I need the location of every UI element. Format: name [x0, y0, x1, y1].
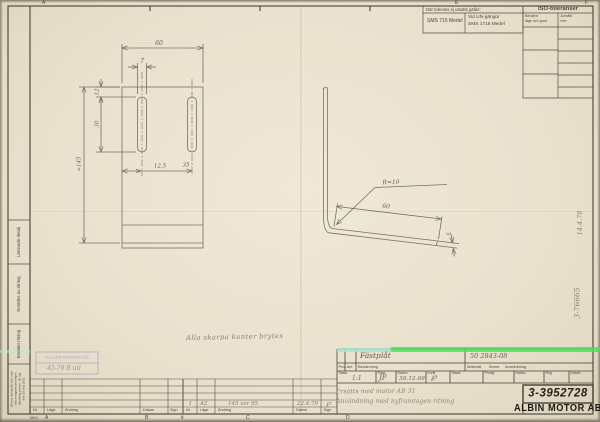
- rev-entry-sign: ℘: [326, 400, 331, 407]
- margin-box-ersatter-ritning: Ersätter ritning: [17, 330, 21, 359]
- iso-col1-line2: läge och grad: [525, 20, 547, 24]
- titleblock-prodgr-label: Prodgr: [485, 372, 495, 375]
- titleblock-anmarkning-header: Anmärkning: [505, 365, 526, 369]
- rev-entry-lage: A2: [200, 402, 207, 408]
- rev-right-datum-header: Datum: [296, 409, 307, 413]
- rev-right-andring-header: Ändring: [218, 409, 231, 413]
- edge-letter-bottom-mko: MKO: [30, 417, 38, 421]
- edge-letter-bottom-c: C: [246, 416, 250, 421]
- rev-left-nr-header: Nr: [33, 409, 37, 413]
- dim-bend-radius: R≈10: [382, 179, 399, 186]
- edge-mark-centerfold: ∨: [180, 415, 184, 421]
- margin-pencil-ref: 3-76665: [573, 287, 581, 318]
- dim-height-145: ≈145: [77, 156, 83, 171]
- titleblock-datum1-value: 30.12.69: [399, 377, 425, 383]
- rev-entry-nr: 1: [189, 402, 193, 408]
- drawing-linework: [0, 0, 600, 422]
- titleblock-skala-value: 1:1: [352, 376, 362, 382]
- tolerance-un-line2: SMS 1718 Medel: [468, 23, 505, 28]
- margin-pencil-date: 14.4.78: [577, 211, 584, 236]
- titleblock-stand-label: Stand: [452, 372, 461, 375]
- dim-width-60: 60: [155, 41, 163, 47]
- iso-col2-line2: mm: [561, 20, 567, 24]
- margin-box-lamnade-detalj: Lämnade detalj: [17, 227, 21, 257]
- titleblock-material-value: 50 2843-08: [470, 353, 507, 360]
- scanned-drawing-sheet: A E F MKO A B ∨ C D Där tolerans ej utsa…: [0, 0, 600, 422]
- rev-left-lage-header: Läge: [47, 409, 55, 413]
- titleblock-skala-label: Skala: [339, 372, 347, 375]
- margin-box-ersattes-av-ritning: Ersättes av ritning: [17, 276, 21, 311]
- titleblock-datum3-label: Datum: [571, 372, 581, 375]
- rev-right-lage-header: Läge: [200, 409, 208, 413]
- rev-left-sign-header: Sign: [170, 409, 178, 413]
- stamp-line1: TILLHÖR AKRONOLÖJD: [45, 356, 89, 359]
- iso-table-title: ISO-toleranser: [538, 7, 578, 13]
- edge-letter-bottom-a: A: [45, 416, 48, 421]
- titleblock-amne-header: Ämne: [489, 365, 499, 369]
- stamp-line2: 45-79 B utl: [47, 366, 81, 372]
- dim-slot-width-7: 7: [140, 59, 144, 65]
- titleblock-ant-header: Ant: [347, 365, 353, 369]
- tolerance-table-header: Där tolerans ej utsatts gäller:: [426, 8, 481, 12]
- titleblock-name-value: Fästplåt: [360, 352, 391, 360]
- titleblock-kontr-signature: ℘: [431, 373, 437, 381]
- rev-entry-datum: 22.4.70: [297, 402, 318, 408]
- drawing-number: 3-3952728: [528, 388, 588, 400]
- rev-right-sign-header: Sign: [324, 409, 332, 413]
- rev-left-andring-header: Ändring: [65, 409, 78, 413]
- edge-letter-top-e: E: [455, 1, 458, 6]
- titleblock-pencil-note1: Ersätts med motor AB 31: [336, 389, 416, 396]
- edge-letter-bottom-b: B: [145, 416, 148, 421]
- edge-letter-bottom-d: D: [346, 416, 350, 421]
- titleblock-ritad-value: JP: [379, 375, 387, 382]
- rev-right-nr-header: Nr: [186, 409, 190, 413]
- margin-legal-line4: den 29 maj 1931: [22, 377, 25, 400]
- front-view-plate: [79, 44, 203, 248]
- titleblock-reg-label: Reg: [546, 372, 552, 375]
- titleblock-benamning-header: Benämning: [358, 365, 378, 369]
- edge-letter-top-a: A: [42, 1, 45, 6]
- dim-slot-pitch-35: 35: [183, 163, 190, 169]
- company-name: ALBIN MOTOR AB: [514, 404, 600, 414]
- tolerance-medel: SMS 715 Medel: [427, 19, 463, 24]
- titleblock-material-header: Material: [467, 365, 481, 369]
- dim-leg-60: 60: [382, 203, 390, 210]
- edge-letter-top-f: F: [585, 1, 588, 6]
- rev-left-datum-header: Datum: [143, 409, 154, 413]
- dim-thickness-3: 3: [444, 231, 450, 236]
- rev-entry-andring: 145 var 95: [228, 402, 258, 408]
- dim-slot-pos-12-5: 12,5: [154, 164, 166, 170]
- dim-edge-offset-12: 12: [95, 89, 101, 96]
- tolerance-un-line1: Vid UN-gängor: [468, 16, 500, 21]
- titleblock-pos-header: Pos: [339, 365, 346, 369]
- side-view-profile: [324, 88, 460, 257]
- titleblock-pencil-note2: Användning med nyframtagen ritning: [336, 399, 454, 405]
- titleblock-datum2-label: Datum: [516, 372, 526, 375]
- dim-slot-length-30: 30: [95, 121, 101, 128]
